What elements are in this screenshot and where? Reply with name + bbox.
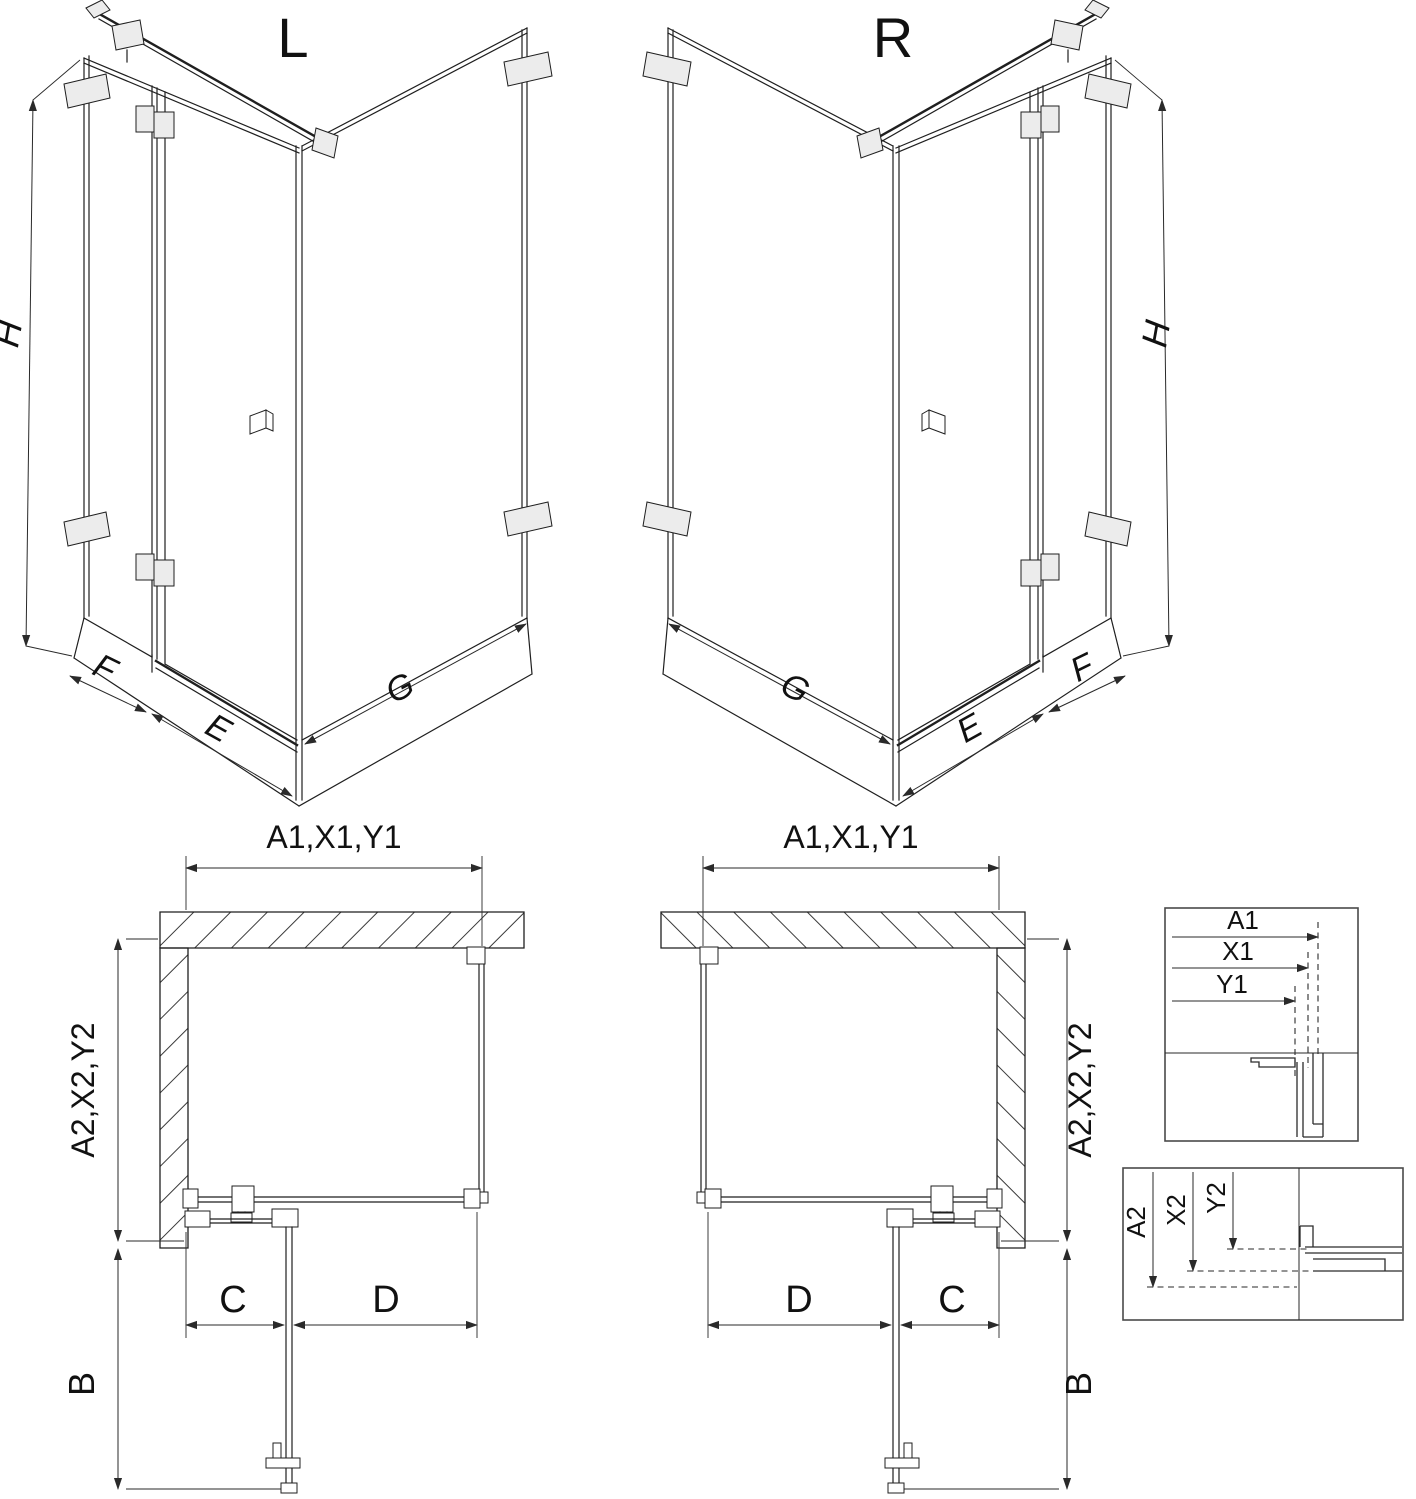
plan-right-door-dim: D [785, 1279, 812, 1321]
detail-width-y1: Y1 [1216, 969, 1248, 999]
iso-left-title: L [277, 6, 308, 69]
plan-left-door-dim: D [372, 1279, 399, 1321]
plan-left-fixed-dim: C [219, 1279, 246, 1321]
detail-depth-x2: X2 [1161, 1194, 1191, 1226]
plan-left-swing-dim: B [61, 1372, 102, 1396]
plan-left-depth-dim: A2,X2,Y2 [65, 1022, 101, 1157]
plan-right-width-dim: A1,X1,Y1 [783, 819, 918, 855]
shower-enclosure-technical-drawing: L R H H F E G G E F A1,X1,Y1 A1,X1,Y1 A2… [0, 0, 1416, 1499]
plan-right-swing-dim: B [1058, 1372, 1099, 1396]
plan-right-fixed-dim: C [938, 1279, 965, 1321]
detail-depth-a2: A2 [1121, 1206, 1151, 1238]
plan-left-width-dim: A1,X1,Y1 [266, 819, 401, 855]
iso-right-title: R [873, 6, 913, 69]
detail-depth-y2: Y2 [1201, 1182, 1231, 1214]
plan-right-depth-dim: A2,X2,Y2 [1062, 1022, 1098, 1157]
detail-width-a1: A1 [1227, 905, 1259, 935]
detail-width-x1: X1 [1222, 936, 1254, 966]
